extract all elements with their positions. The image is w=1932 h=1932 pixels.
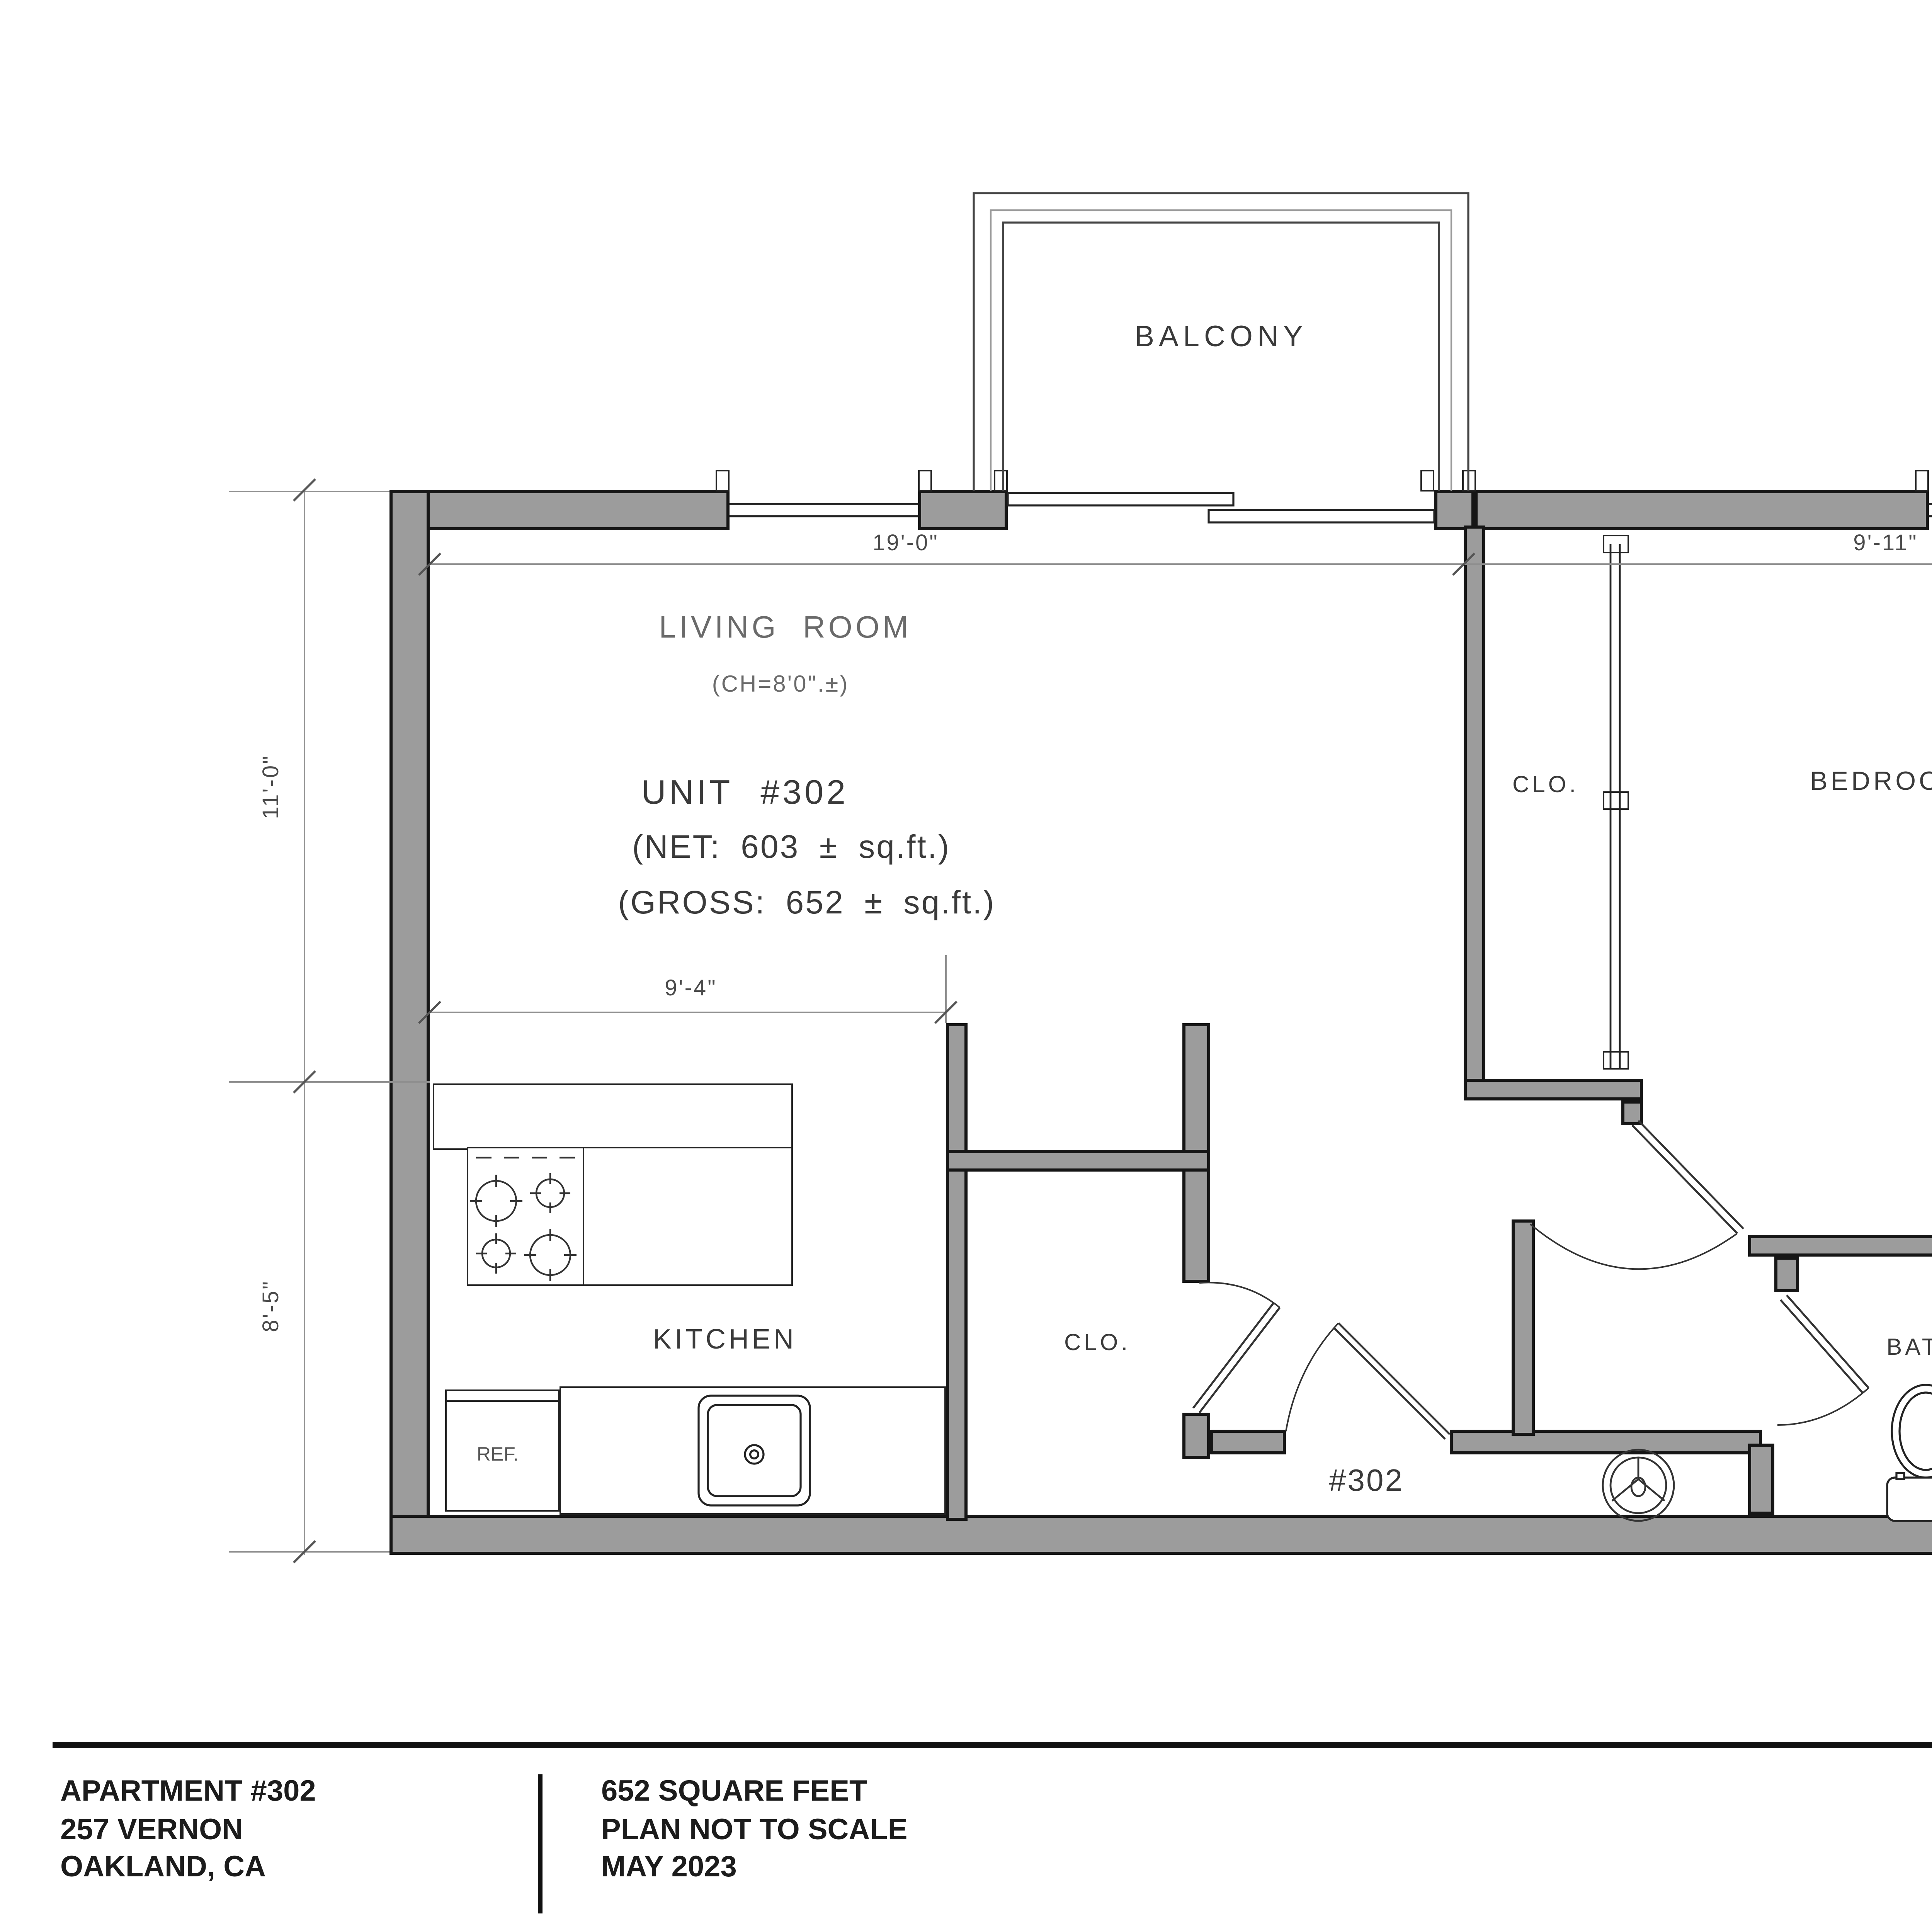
unit-door-label: #302	[1329, 1464, 1404, 1500]
dim-bedroom-width: 9'-11"	[1853, 532, 1918, 556]
unit-title-label: UNIT #302	[641, 773, 849, 813]
wall-living-closet	[1464, 526, 1485, 1100]
toilet	[1887, 1385, 1932, 1521]
wall-bottom	[389, 1515, 1932, 1555]
living-room-label: LIVING ROOM	[659, 611, 911, 647]
stove	[467, 1147, 584, 1286]
wall-bedroom-door-jamb	[1621, 1100, 1643, 1125]
footer-sqft: 652 SQUARE FEET	[601, 1774, 907, 1812]
wall-bath-door-jamb	[1774, 1257, 1799, 1292]
jamb-tab	[716, 470, 730, 492]
wall-entry-right	[1450, 1430, 1762, 1454]
wall-bath-left-lower	[1748, 1444, 1774, 1515]
door-bath	[1777, 1295, 1869, 1425]
vanity-basin	[1603, 1450, 1674, 1521]
kitchen-counter-side	[581, 1147, 793, 1286]
wall-entry-left	[1210, 1430, 1286, 1454]
wall-top-2	[1475, 490, 1929, 530]
wall-closet-bottom	[1464, 1079, 1643, 1100]
footer-city: OAKLAND, CA	[60, 1850, 316, 1888]
footer-divider-1	[538, 1774, 542, 1913]
dim-living-width: 19'-0"	[872, 532, 939, 556]
slider-tab	[1603, 535, 1629, 553]
ceiling-height-label: (CH=8'0".±)	[712, 672, 849, 698]
wall-top-pier2	[1434, 490, 1475, 530]
kitchen-label: KITCHEN	[653, 1324, 797, 1356]
window-living	[730, 493, 918, 527]
jamb-tab	[1420, 470, 1434, 492]
footer-scale-note: PLAN NOT TO SCALE	[601, 1812, 907, 1850]
counter-lower	[560, 1386, 946, 1515]
door-entry-302	[1286, 1323, 1450, 1439]
wall-top-1	[389, 490, 730, 530]
bath-label: BATH	[1886, 1335, 1932, 1361]
footer-street: 257 VERNON	[60, 1812, 316, 1850]
wall-nook-left	[946, 1023, 968, 1521]
footer-rule	[53, 1742, 1932, 1747]
floor-plan-page: BALCONY LIVING ROOM (CH=8'0".±) UNIT #30…	[0, 0, 1932, 1932]
slider-tab	[1603, 1051, 1629, 1070]
wall-left	[389, 490, 430, 1555]
jamb-tab	[918, 470, 932, 492]
footer-info-block: 652 SQUARE FEET PLAN NOT TO SCALE MAY 20…	[601, 1774, 907, 1888]
kitchen-counter-peninsula	[433, 1083, 793, 1150]
footer-address-block: APARTMENT #302 257 VERNON OAKLAND, CA	[60, 1774, 316, 1888]
bedroom-label: BEDROOM	[1810, 767, 1932, 798]
closet-upper-label: CLO.	[1512, 772, 1579, 798]
jamb-tab	[994, 470, 1008, 492]
balcony-label: BALCONY	[1134, 321, 1307, 355]
door-bedroom	[1530, 1121, 1743, 1269]
wall-closet-door-jamb	[1182, 1413, 1210, 1459]
closet-lower-label: CLO.	[1064, 1330, 1131, 1356]
dim-living-height: 11'-0"	[260, 754, 284, 819]
jamb-tab	[1915, 470, 1929, 492]
gross-area-label: (GROSS: 652 ± sq.ft.)	[618, 886, 995, 923]
balcony-sliding-door	[1008, 493, 1434, 522]
wall-bath-top	[1748, 1235, 1932, 1257]
slider-tab	[1603, 791, 1629, 810]
fridge-label: REF.	[477, 1444, 519, 1465]
dim-kitchen-height: 8'-5"	[260, 1280, 284, 1332]
door-closet	[1193, 1282, 1280, 1413]
dim-kitchen-width: 9'-4"	[665, 977, 717, 1002]
wall-nook-bottom	[946, 1150, 1210, 1172]
footer-date: MAY 2023	[601, 1850, 907, 1888]
jamb-tab	[1462, 470, 1476, 492]
refrigerator-door-line	[445, 1400, 560, 1403]
wall-top-pier1	[918, 490, 1008, 530]
plan-linework	[0, 0, 1932, 1932]
net-area-label: (NET: 603 ± sq.ft.)	[632, 830, 951, 867]
wall-hall-divider	[1512, 1219, 1535, 1436]
footer-apartment: APARTMENT #302	[60, 1774, 316, 1812]
window-bedroom	[1929, 493, 1932, 527]
